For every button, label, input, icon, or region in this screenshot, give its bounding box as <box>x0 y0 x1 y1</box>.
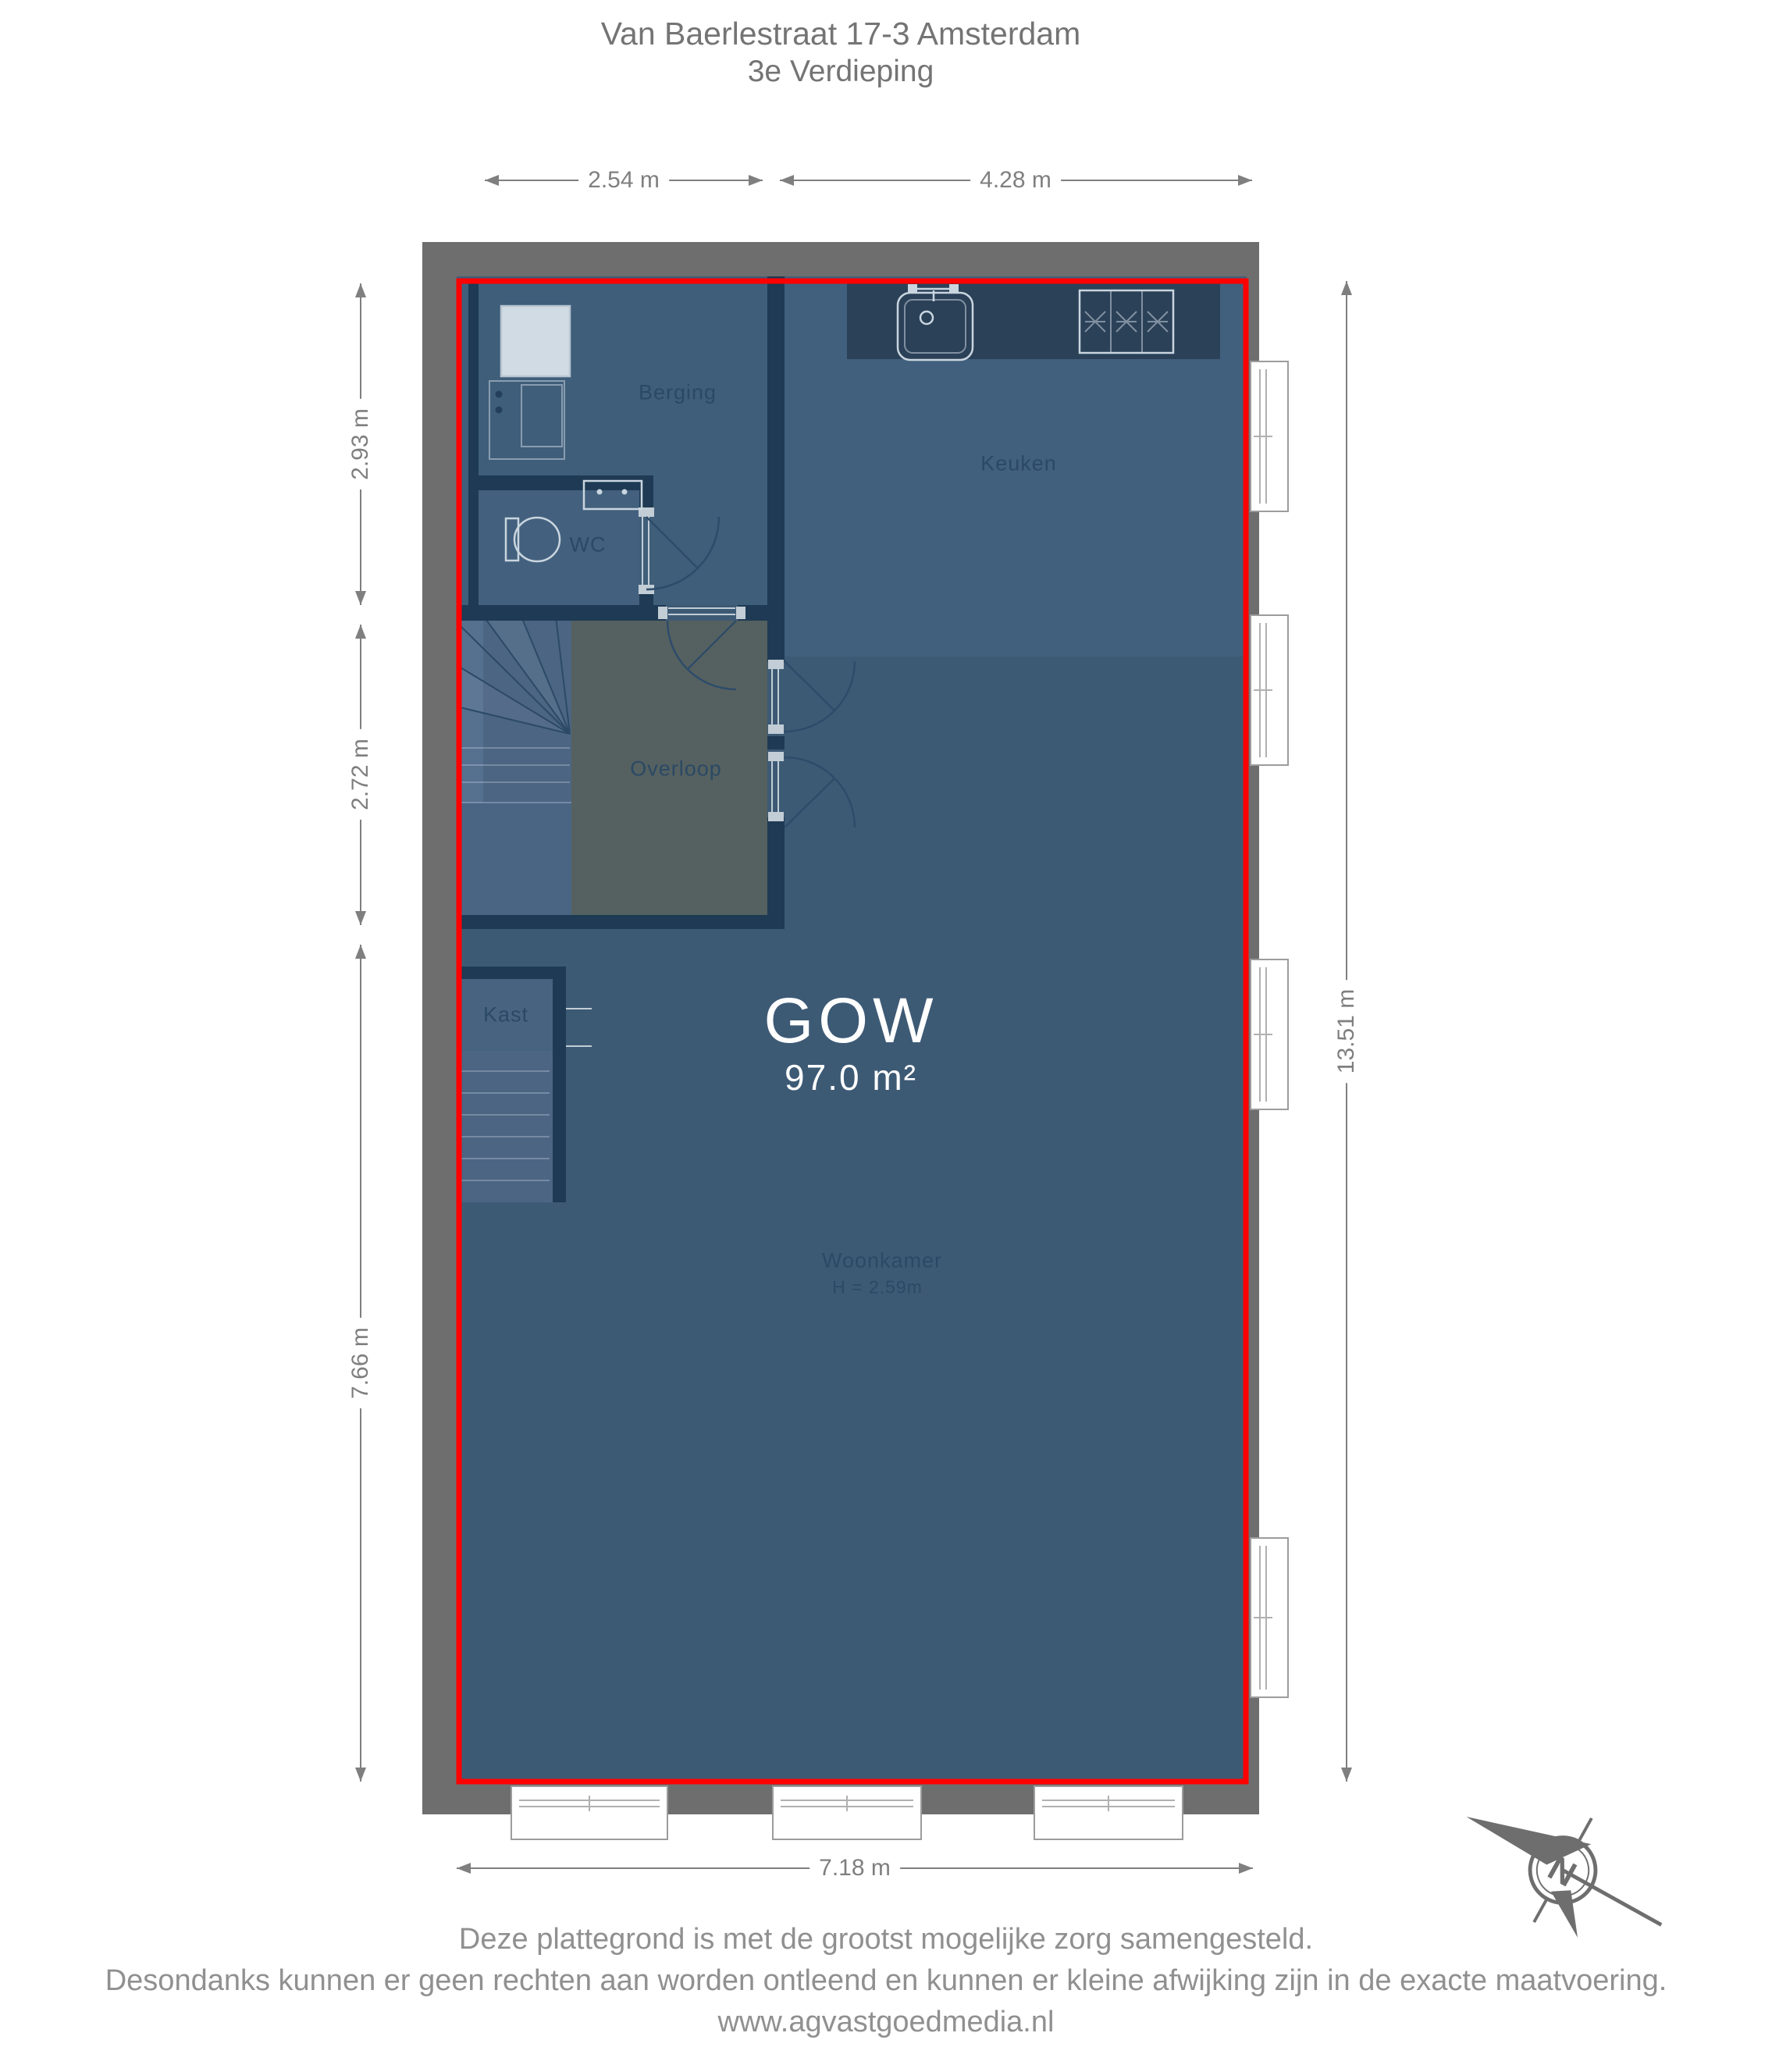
gow-label: GOW <box>764 984 938 1058</box>
room-label-woonkamer: Woonkamer <box>822 1249 942 1273</box>
dim-total-depth: 13.51 m <box>1332 980 1361 1083</box>
room-label-kast: Kast <box>483 1003 528 1027</box>
room-label-berging: Berging <box>639 381 717 405</box>
room-label-keuken: Keuken <box>980 452 1057 476</box>
footer-line-2: Desondanks kunnen er geen rechten aan wo… <box>0 1960 1772 2002</box>
room-ceiling-height: H = 2.59m <box>832 1277 923 1298</box>
windows-bottom-wall <box>511 1786 1183 1839</box>
dim-keuken-width: 4.28 m <box>970 166 1061 195</box>
dim-total-width: 7.18 m <box>809 1853 900 1883</box>
footer-website: www.agvastgoedmedia.nl <box>0 2002 1772 2043</box>
room-label-overloop: Overloop <box>630 757 722 781</box>
footer-line-1: Deze plattegrond is met de grootst mogel… <box>0 1919 1772 1960</box>
room-label-wc: WC <box>570 533 607 557</box>
dim-woonkamer-depth: 7.66 m <box>346 1318 375 1408</box>
dim-overloop-depth: 2.72 m <box>346 729 375 820</box>
footer-disclaimer: Deze plattegrond is met de grootst mogel… <box>0 1919 1772 2043</box>
dim-berging-depth: 2.93 m <box>346 399 375 490</box>
floorplan-page: Van Baerlestraat 17-3 Amsterdam 3e Verdi… <box>0 0 1772 2072</box>
gow-area-value: 97.0 m² <box>785 1056 917 1098</box>
dim-berging-width: 2.54 m <box>578 166 669 195</box>
